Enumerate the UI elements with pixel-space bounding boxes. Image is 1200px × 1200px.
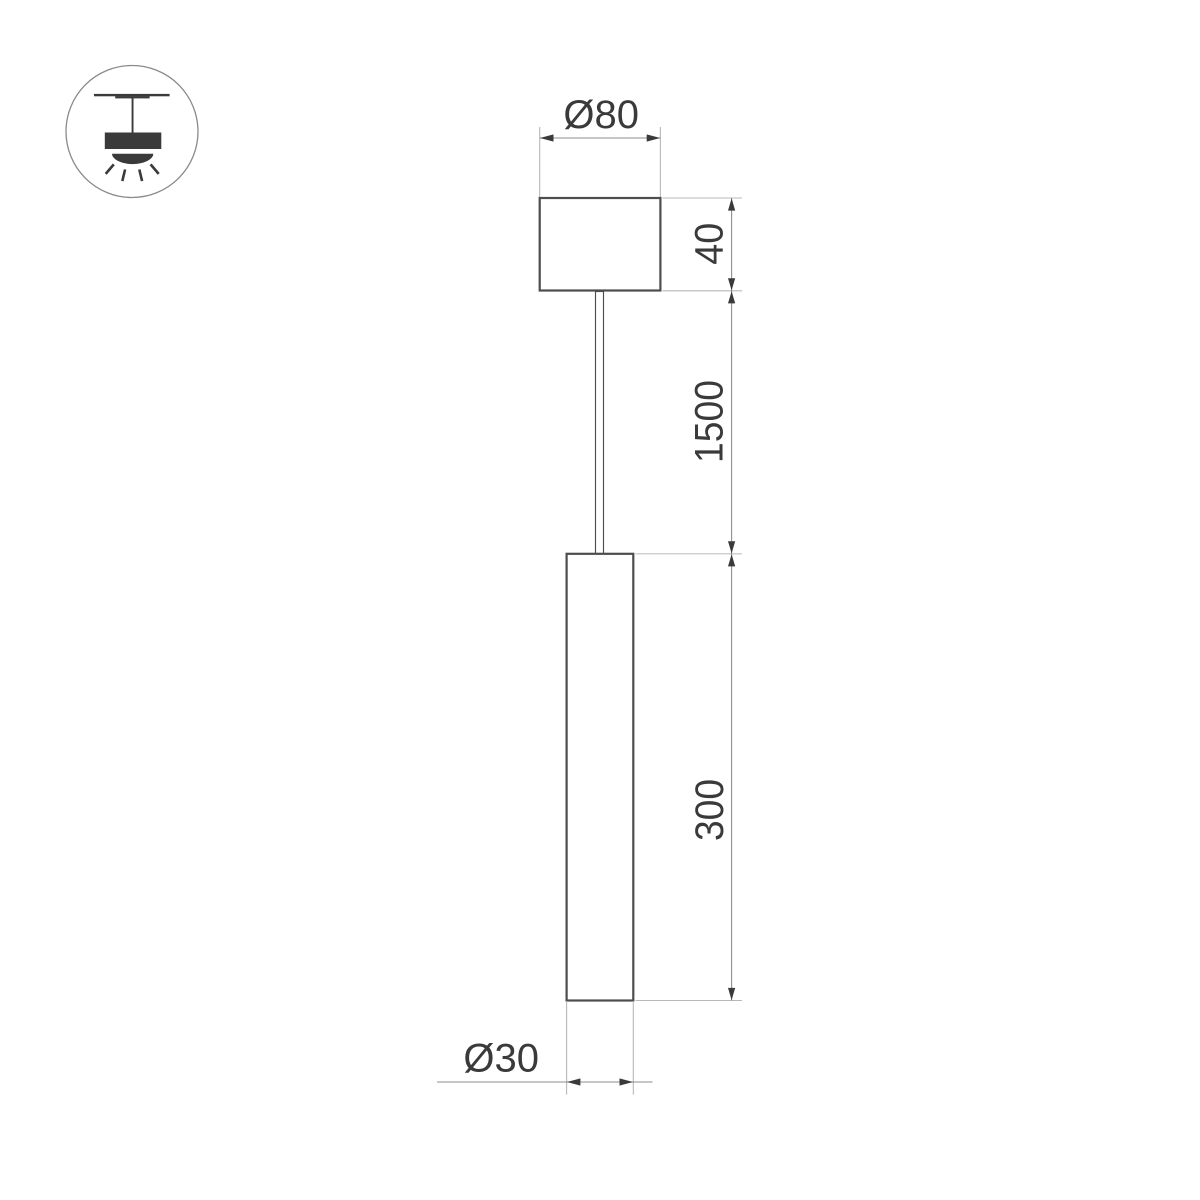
svg-text:1500: 1500 bbox=[688, 380, 732, 463]
svg-text:Ø30: Ø30 bbox=[463, 1037, 539, 1081]
svg-text:Ø80: Ø80 bbox=[563, 93, 639, 137]
svg-text:40: 40 bbox=[688, 223, 732, 265]
svg-text:300: 300 bbox=[688, 779, 732, 841]
